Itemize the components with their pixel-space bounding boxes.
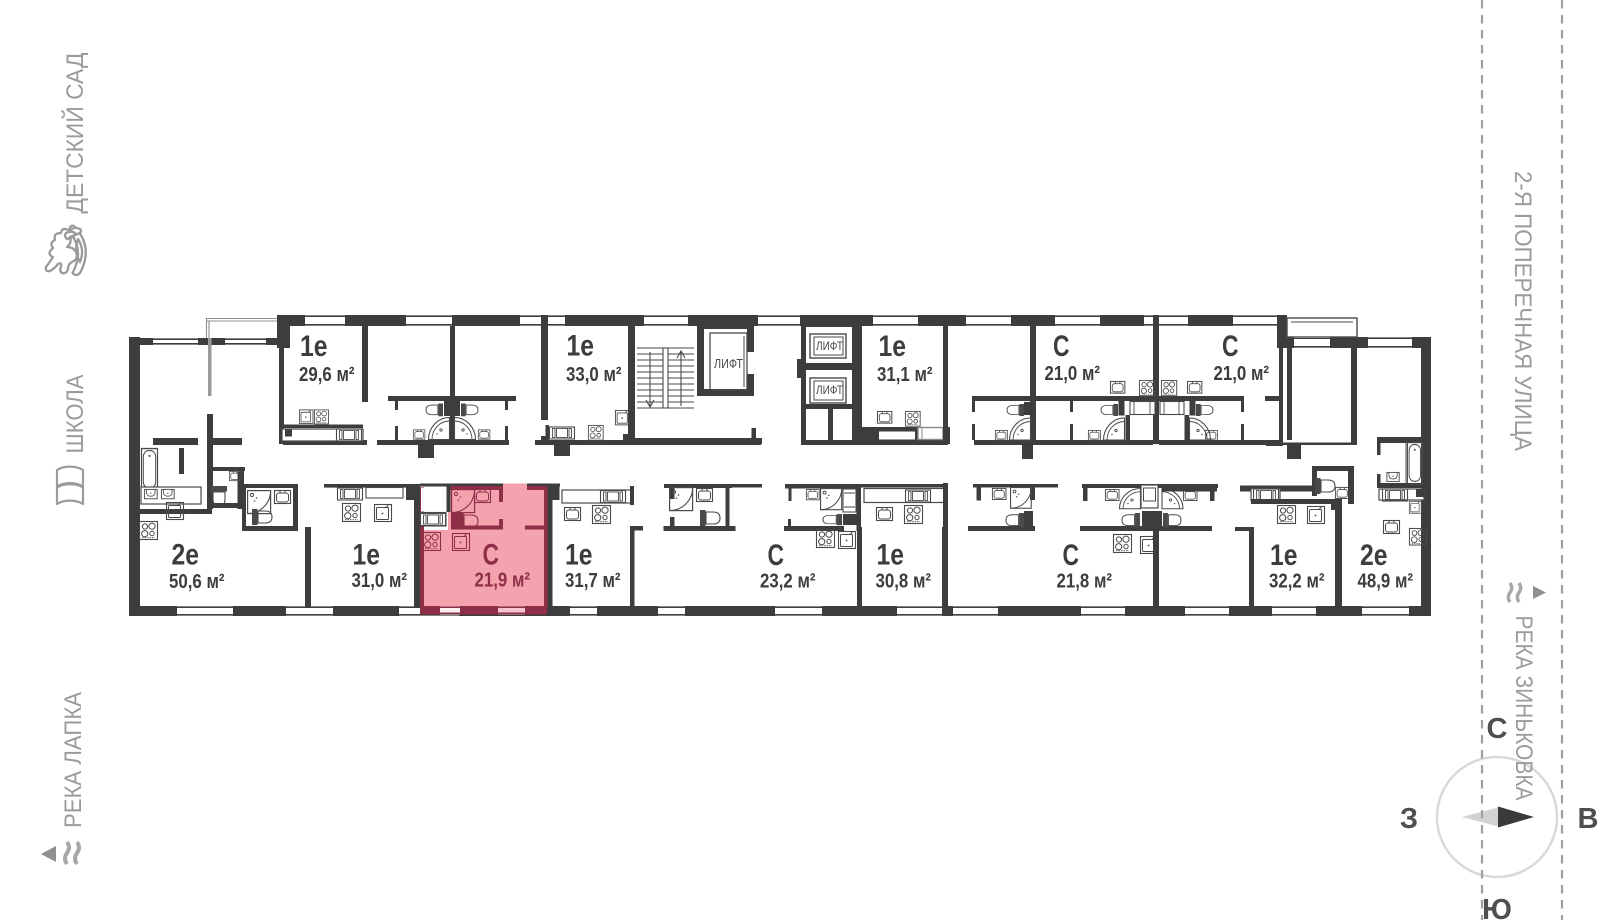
svg-text:1е: 1е — [879, 330, 907, 363]
svg-text:33,0 м²: 33,0 м² — [566, 364, 622, 386]
svg-text:Ю: Ю — [1482, 894, 1512, 920]
svg-text:РЕКА ЛАПКА: РЕКА ЛАПКА — [60, 692, 87, 828]
svg-text:2е: 2е — [1360, 539, 1388, 572]
svg-text:1е: 1е — [1270, 539, 1298, 572]
svg-text:31,7 м²: 31,7 м² — [565, 570, 621, 592]
svg-text:ЛИФТ: ЛИФТ — [816, 339, 844, 353]
svg-text:С: С — [1063, 539, 1080, 572]
svg-text:С: С — [1487, 713, 1508, 745]
svg-text:ДЕТСКИЙ САД: ДЕТСКИЙ САД — [61, 53, 89, 214]
svg-text:21,0 м²: 21,0 м² — [1214, 363, 1270, 385]
svg-text:21,8 м²: 21,8 м² — [1057, 571, 1113, 593]
svg-text:48,9 м²: 48,9 м² — [1358, 571, 1414, 593]
svg-text:2е: 2е — [172, 539, 200, 572]
svg-text:29,6 м²: 29,6 м² — [299, 364, 355, 386]
svg-text:1е: 1е — [353, 539, 381, 572]
svg-text:23,2 м²: 23,2 м² — [760, 571, 816, 593]
svg-text:С: С — [768, 539, 785, 572]
svg-text:1е: 1е — [567, 330, 595, 363]
svg-text:ЛИФТ: ЛИФТ — [816, 383, 844, 397]
svg-text:2-Я ПОПЕРЕЧНАЯ УЛИЦА: 2-Я ПОПЕРЕЧНАЯ УЛИЦА — [1509, 171, 1536, 451]
svg-text:С: С — [483, 539, 500, 572]
svg-text:З: З — [1400, 803, 1418, 835]
svg-text:ШКОЛА: ШКОЛА — [62, 375, 89, 454]
svg-text:С: С — [1222, 330, 1239, 363]
svg-text:50,6 м²: 50,6 м² — [169, 571, 225, 593]
svg-text:1е: 1е — [300, 330, 328, 363]
svg-text:31,1 м²: 31,1 м² — [877, 364, 933, 386]
svg-text:21,9 м²: 21,9 м² — [475, 570, 531, 592]
svg-text:ЛИФТ: ЛИФТ — [714, 356, 743, 371]
svg-text:РЕКА ЗИНЬКОВКА: РЕКА ЗИНЬКОВКА — [1510, 616, 1537, 801]
svg-text:1е: 1е — [877, 539, 905, 572]
svg-text:С: С — [1053, 330, 1070, 363]
svg-text:30,8 м²: 30,8 м² — [876, 571, 932, 593]
svg-text:21,0 м²: 21,0 м² — [1045, 363, 1101, 385]
svg-text:В: В — [1578, 803, 1599, 835]
svg-text:32,2 м²: 32,2 м² — [1269, 571, 1325, 593]
svg-text:1е: 1е — [565, 539, 593, 572]
svg-text:31,0 м²: 31,0 м² — [352, 570, 408, 592]
